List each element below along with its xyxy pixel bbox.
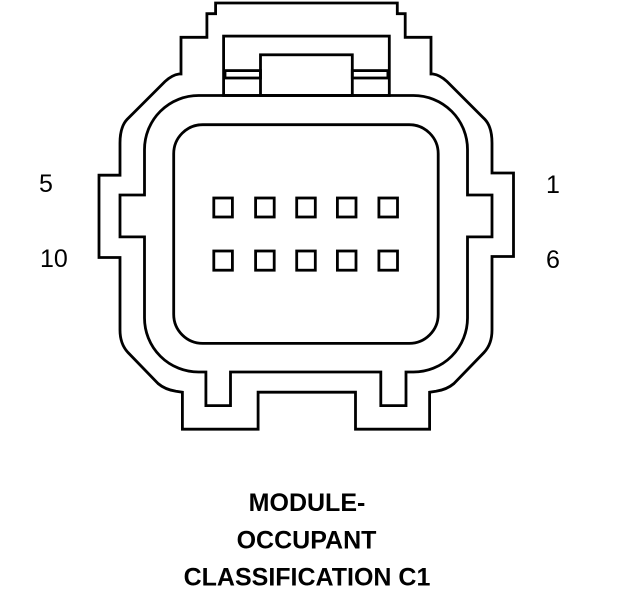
svg-text:1: 1 xyxy=(546,171,560,199)
svg-text:5: 5 xyxy=(39,170,53,198)
svg-text:CLASSIFICATION C1: CLASSIFICATION C1 xyxy=(184,564,431,592)
svg-text:MODULE-: MODULE- xyxy=(249,489,366,517)
svg-text:6: 6 xyxy=(546,246,560,274)
svg-text:OCCUPANT: OCCUPANT xyxy=(237,527,377,555)
svg-text:10: 10 xyxy=(40,245,68,273)
